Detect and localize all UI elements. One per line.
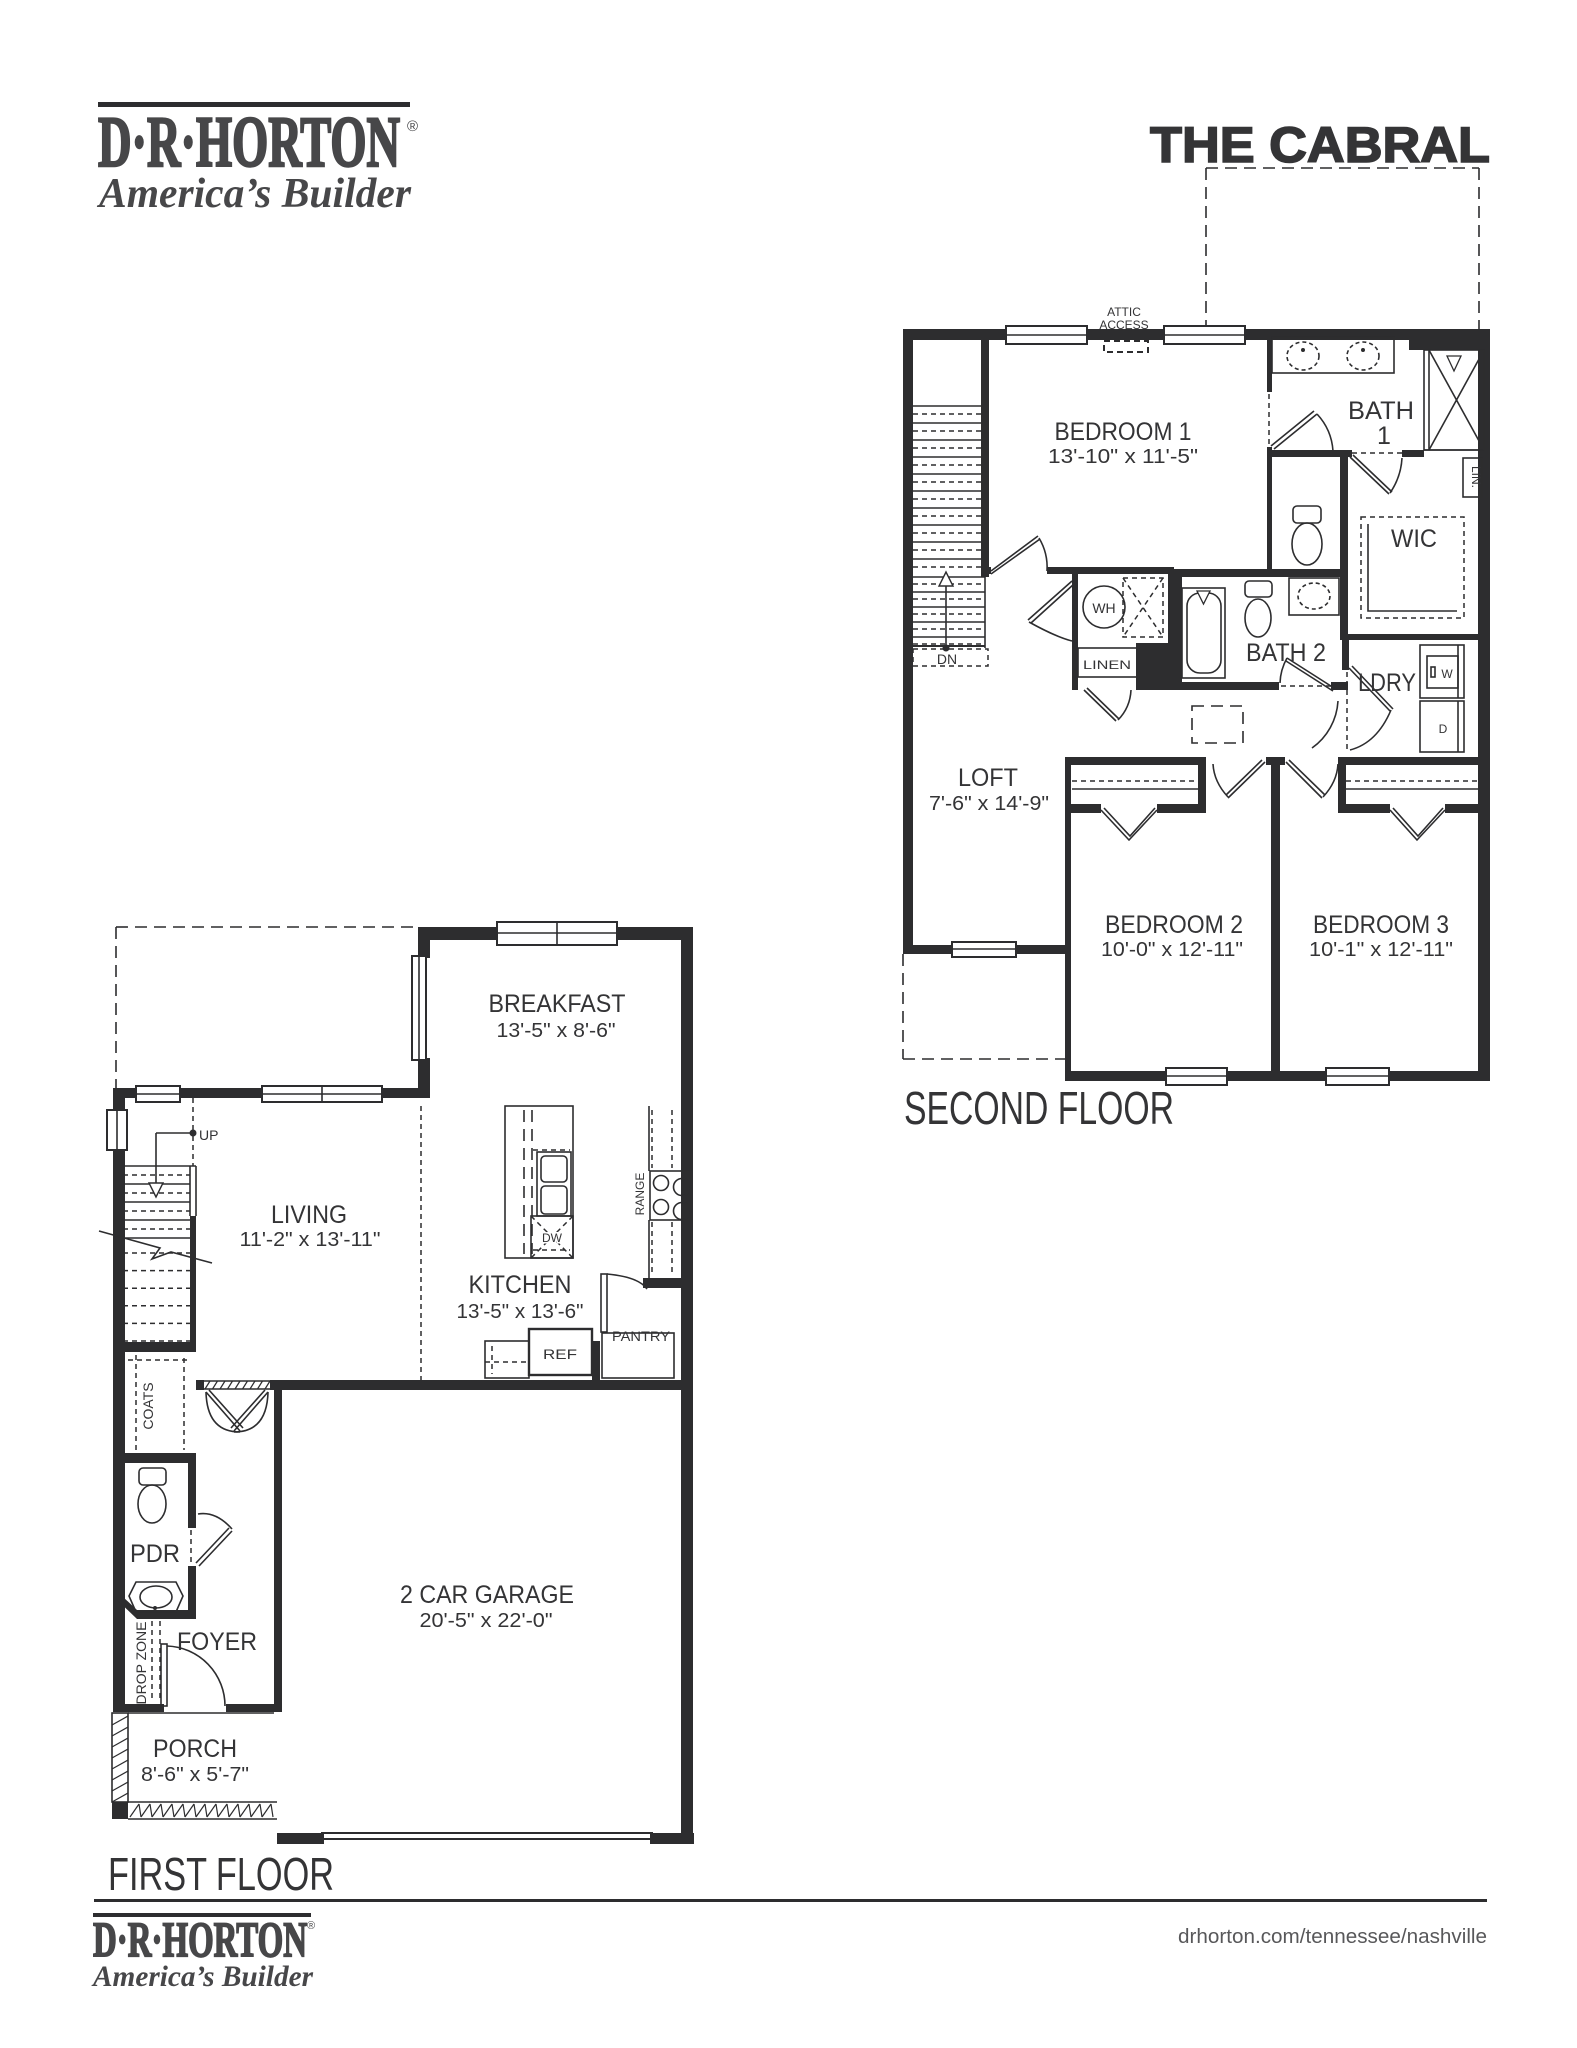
svg-text:ACCESS: ACCESS [1099,318,1148,332]
svg-text:DN: DN [937,651,957,667]
svg-text:1: 1 [1377,422,1391,450]
svg-text:10'-1" x 12'-11": 10'-1" x 12'-11" [1309,939,1453,961]
svg-text:BREAKFAST: BREAKFAST [489,990,626,1018]
svg-text:PANTRY: PANTRY [612,1328,671,1344]
svg-text:13'-10" x 11'-5": 13'-10" x 11'-5" [1048,446,1198,468]
svg-text:LIVING: LIVING [271,1201,347,1229]
svg-text:8'-6" x 5'-7": 8'-6" x 5'-7" [141,1764,249,1786]
svg-text:LINEN: LINEN [1083,658,1131,672]
svg-text:LDRY: LDRY [1358,669,1416,697]
svg-text:RANGE: RANGE [633,1173,647,1216]
svg-text:SECOND FLOOR: SECOND FLOOR [904,1082,1174,1134]
svg-text:®: ® [307,1920,315,1932]
svg-text:BEDROOM 2: BEDROOM 2 [1105,911,1243,939]
svg-text:BATH 2: BATH 2 [1246,639,1326,667]
svg-text:America’s Builder: America’s Builder [91,1960,313,1993]
svg-text:BEDROOM 1: BEDROOM 1 [1055,418,1192,446]
svg-text:2 CAR GARAGE: 2 CAR GARAGE [400,1581,574,1609]
svg-text:UP: UP [199,1127,218,1143]
svg-text:DROP ZONE: DROP ZONE [133,1622,149,1705]
svg-text:America’s Builder: America’s Builder [96,171,412,217]
svg-text:PDR: PDR [130,1540,180,1568]
svg-text:BEDROOM 3: BEDROOM 3 [1313,911,1449,939]
svg-text:REF: REF [543,1346,577,1362]
svg-text:drhorton.com/tennessee/nashvil: drhorton.com/tennessee/nashville [1178,1926,1487,1948]
svg-text:ATTIC: ATTIC [1107,305,1141,319]
svg-text:WIC: WIC [1391,525,1437,553]
svg-text:20'-5" x 22'-0": 20'-5" x 22'-0" [420,1610,553,1632]
svg-text:FOYER: FOYER [177,1628,257,1656]
svg-text:®: ® [407,118,418,135]
svg-text:D·R·HORTON: D·R·HORTON [98,102,400,182]
svg-text:10'-0" x 12'-11": 10'-0" x 12'-11" [1101,939,1243,961]
svg-text:D·R·HORTON: D·R·HORTON [93,1911,307,1967]
svg-text:WH: WH [1092,600,1115,616]
svg-text:KITCHEN: KITCHEN [469,1271,572,1299]
svg-text:PORCH: PORCH [153,1735,237,1763]
svg-text:D: D [1439,722,1448,736]
svg-text:FIRST FLOOR: FIRST FLOOR [108,1848,334,1900]
svg-text:13'-5" x 13'-6": 13'-5" x 13'-6" [457,1301,584,1323]
svg-text:W: W [1441,667,1453,681]
svg-text:COATS: COATS [140,1382,156,1429]
svg-text:DW: DW [542,1231,563,1245]
svg-text:13'-5" x 8'-6": 13'-5" x 8'-6" [497,1020,616,1042]
svg-text:LIN.: LIN. [1469,466,1483,488]
svg-text:LOFT: LOFT [958,764,1018,792]
svg-text:11'-2" x 13'-11": 11'-2" x 13'-11" [240,1229,381,1251]
svg-text:THE CABRAL: THE CABRAL [1150,117,1490,173]
svg-text:7'-6" x 14'-9": 7'-6" x 14'-9" [929,793,1049,815]
svg-text:BATH: BATH [1348,397,1414,425]
